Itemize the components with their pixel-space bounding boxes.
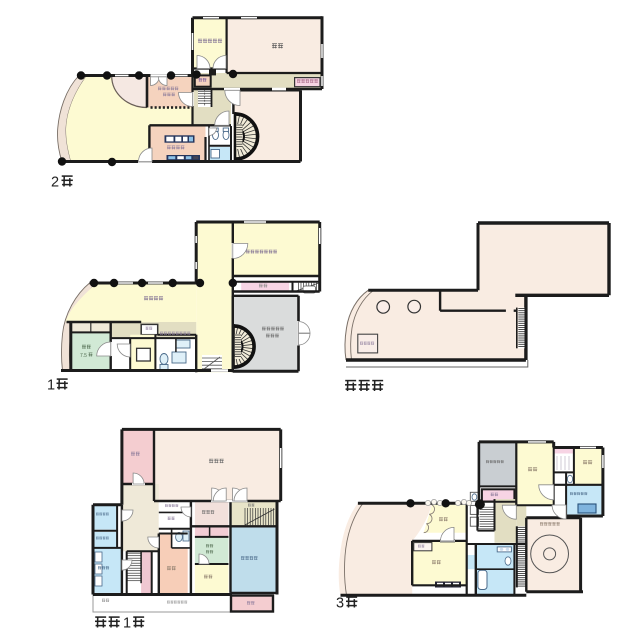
svg-text:1: 1 xyxy=(123,616,131,632)
svg-text:3: 3 xyxy=(336,596,344,612)
svg-text:2: 2 xyxy=(51,175,59,191)
svg-text:1: 1 xyxy=(47,378,55,394)
svg-text:7.5: 7.5 xyxy=(80,353,87,359)
